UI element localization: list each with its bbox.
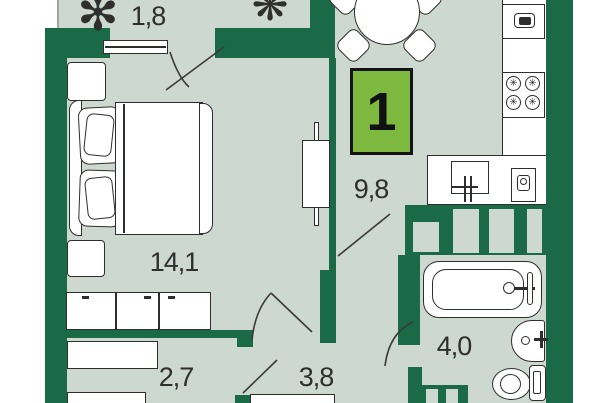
dresser-knob	[82, 296, 89, 299]
plant-icon: ❋	[246, 0, 294, 28]
wall-left	[45, 28, 67, 403]
unit-badge: 1	[350, 68, 413, 155]
room-label-kitchen-living: 9,8	[343, 175, 399, 203]
shaft-opening	[446, 389, 458, 403]
outside-patch	[45, 0, 57, 28]
bathtub-faucet-knob	[503, 282, 515, 294]
wall-stub-hallway	[237, 330, 253, 347]
bed-blanket	[115, 102, 203, 235]
shaft-opening	[413, 222, 439, 252]
shaft-opening	[489, 209, 514, 253]
balcony-window-mullion	[105, 46, 166, 48]
tv-screen	[302, 140, 330, 208]
fridge	[502, 4, 545, 39]
toilet-tank	[529, 365, 546, 401]
nightstand	[67, 62, 106, 101]
room-label-entry-corridor: 3,8	[288, 363, 344, 391]
dresser-knob	[168, 296, 175, 299]
wall-bedroom-bottom	[62, 330, 237, 338]
room-label-bathroom: 4,0	[426, 332, 482, 360]
shaft-opening	[527, 209, 542, 253]
wall-bedroom-corridor	[320, 270, 336, 343]
floor-plan: ✳ ✳ ✳ ✳ ✻ ❋ 1,8 14,1 9,8 2,7	[0, 0, 605, 403]
toilet-bowl-inner	[500, 374, 521, 394]
room-label-hallway: 2,7	[148, 363, 204, 391]
sink-faucet	[464, 176, 466, 202]
nightstand	[67, 240, 105, 277]
hall-closet	[67, 392, 146, 403]
bed-pillow-inner	[83, 113, 115, 158]
stove-burner-icon: ✳	[525, 76, 540, 91]
bed-pillow-inner	[84, 176, 116, 221]
washbasin-faucet	[540, 331, 543, 348]
stove-burner-icon: ✳	[525, 95, 540, 110]
sink-faucet	[470, 176, 472, 202]
room-label-bedroom: 14,1	[142, 248, 206, 276]
plant-icon: ✻	[72, 0, 124, 38]
washbasin-drain	[521, 336, 530, 345]
wall-balcony-kitchen	[310, 0, 335, 58]
dresser-divider	[115, 293, 117, 329]
bed-footboard	[199, 103, 213, 234]
fridge-icon-core	[519, 17, 531, 25]
bed-blanket-fold	[123, 104, 125, 233]
room-label-balcony: 1,8	[120, 2, 176, 30]
stove-burner-icon: ✳	[506, 95, 521, 110]
balcony-railing	[57, 0, 59, 28]
washer	[511, 168, 536, 202]
dresser-divider	[158, 293, 160, 329]
wall-bedroom-kitchen	[329, 58, 336, 275]
washer-icon-drum	[520, 178, 527, 185]
shaft-opening	[453, 209, 479, 253]
hall-closet	[67, 341, 158, 369]
toilet-tank-button	[533, 371, 541, 394]
dresser-knob	[144, 296, 151, 299]
wall-bathroom-left	[398, 255, 420, 345]
wall-right	[546, 0, 573, 403]
stove-burner-icon: ✳	[506, 76, 521, 91]
bathtub-faucet-handle	[527, 272, 533, 305]
shaft-opening	[426, 389, 438, 403]
wall-stub-entry	[235, 395, 250, 403]
shoe-cabinet	[250, 394, 335, 403]
